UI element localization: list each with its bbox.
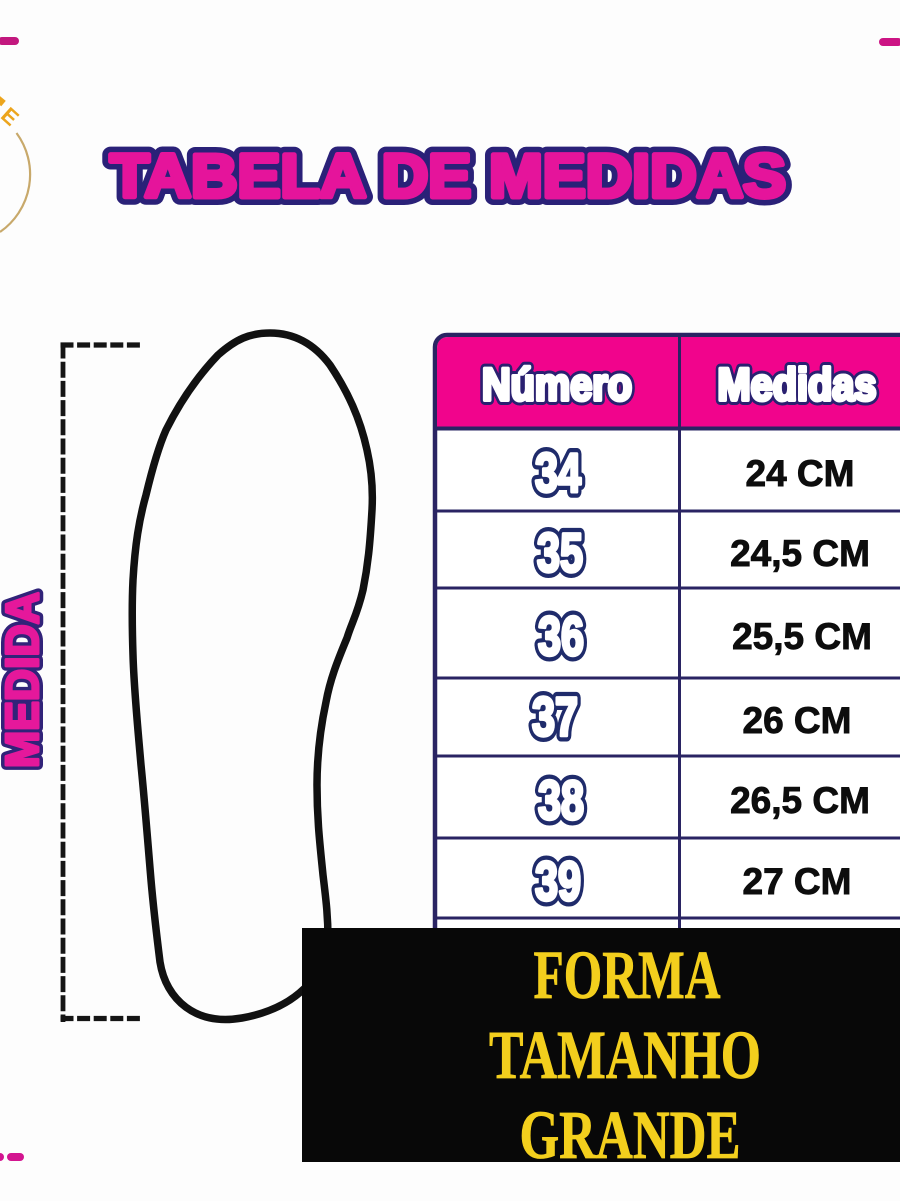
svg-text:27 CM: 27 CM (743, 861, 852, 902)
svg-text:26,5 CM: 26,5 CM (730, 780, 870, 821)
svg-text:39: 39 (535, 850, 581, 912)
svg-text:24 CM: 24 CM (746, 453, 855, 494)
svg-text:35: 35 (537, 522, 583, 584)
svg-text:GRANDE: GRANDE (519, 1097, 740, 1174)
svg-text:34: 34 (535, 442, 581, 504)
svg-text:Medidas: Medidas (718, 359, 877, 410)
svg-text:38: 38 (538, 769, 584, 831)
svg-text:37: 37 (532, 686, 578, 748)
svg-text:25,5 CM: 25,5 CM (732, 616, 872, 657)
svg-text:TABELA DE MEDIDAS: TABELA DE MEDIDAS (110, 142, 786, 210)
svg-text:36: 36 (538, 605, 584, 667)
svg-text:FORMA: FORMA (534, 937, 721, 1014)
svg-text:TAMANHO: TAMANHO (489, 1017, 761, 1094)
svg-text:Número: Número (482, 359, 632, 410)
svg-text:24,5 CM: 24,5 CM (730, 533, 870, 574)
svg-text:E: E (0, 102, 24, 130)
svg-text:26 CM: 26 CM (743, 700, 852, 741)
svg-text:MEDIDA: MEDIDA (0, 592, 48, 768)
